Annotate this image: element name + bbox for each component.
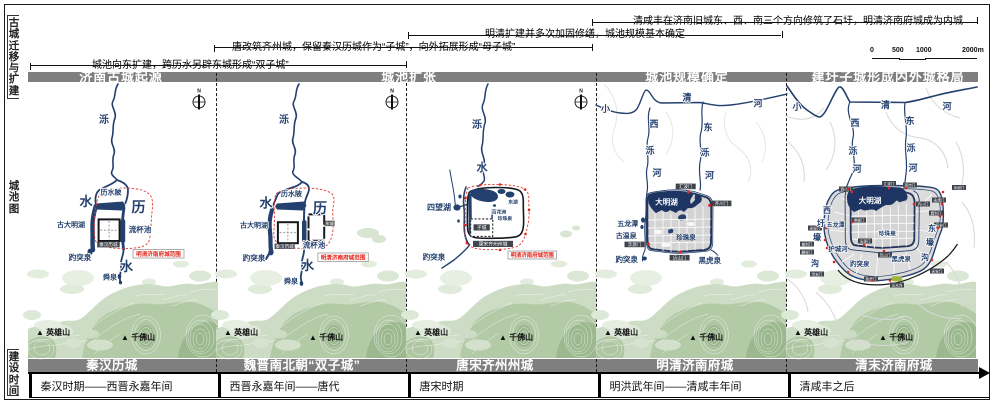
svg-text:河: 河 (852, 163, 861, 174)
svg-text:泺: 泺 (848, 145, 857, 156)
svg-text:趵突泉: 趵突泉 (615, 254, 638, 264)
svg-text:泺源门: 泺源门 (628, 241, 641, 248)
svg-text:河: 河 (753, 98, 762, 109)
svg-text:东: 东 (905, 115, 914, 126)
svg-text:唐宋齐州州城: 唐宋齐州州城 (479, 241, 508, 248)
svg-text:西: 西 (823, 206, 831, 215)
svg-text:五龙潭: 五龙潭 (617, 219, 638, 228)
svg-text:黑虎泉: 黑虎泉 (699, 255, 722, 265)
svg-text:汇波门: 汇波门 (679, 183, 692, 190)
svg-text:泺: 泺 (279, 113, 289, 126)
svg-text:秦汉历城: 秦汉历城 (99, 241, 118, 248)
svg-text:历山门: 历山门 (673, 254, 686, 261)
svg-text:沟: 沟 (921, 252, 929, 262)
svg-text:明清济南府城范围: 明清济南府城范围 (511, 251, 555, 259)
svg-text:泺: 泺 (472, 118, 482, 131)
svg-text:齐川门: 齐川门 (918, 201, 929, 206)
svg-text:古大明湖: 古大明湖 (57, 220, 85, 229)
svg-text:舜泉: 舜泉 (284, 276, 299, 285)
svg-text:河: 河 (652, 167, 661, 178)
svg-text:清: 清 (881, 99, 890, 110)
svg-text:永固门: 永固门 (954, 185, 965, 190)
svg-text:古大明湖: 古大明湖 (240, 221, 268, 230)
svg-text:百花洲: 百花洲 (492, 209, 507, 216)
svg-text:西: 西 (649, 119, 658, 129)
svg-text:历水陂: 历水陂 (101, 188, 123, 197)
svg-text:山水沟: 山水沟 (892, 282, 903, 287)
svg-text:黑虎泉: 黑虎泉 (892, 254, 912, 263)
svg-text:壕: 壕 (926, 237, 935, 247)
svg-text:泺: 泺 (906, 142, 915, 153)
svg-text:岱安门: 岱安门 (812, 271, 823, 276)
svg-text:流杯池: 流杯池 (303, 239, 326, 249)
svg-text:流杯池: 流杯池 (129, 224, 152, 234)
svg-text:明清济南府城范围: 明清济南府城范围 (136, 250, 181, 258)
svg-text:水: 水 (79, 194, 93, 209)
svg-text:清: 清 (682, 92, 691, 103)
svg-text:泺: 泺 (700, 147, 709, 158)
svg-text:珍珠泉: 珍珠泉 (676, 233, 696, 242)
svg-text:普利门: 普利门 (802, 241, 813, 246)
svg-text:河: 河 (908, 162, 917, 173)
svg-text:古温泉: 古温泉 (616, 231, 638, 240)
svg-text:历: 历 (313, 200, 327, 216)
svg-text:东城: 东城 (325, 220, 334, 227)
svg-text:齐川门: 齐川门 (715, 200, 728, 207)
svg-text:泺: 泺 (645, 145, 654, 156)
svg-text:圩: 圩 (817, 218, 825, 228)
svg-text:小: 小 (600, 103, 610, 114)
svg-text:泺: 泺 (99, 113, 109, 126)
svg-text:东: 东 (928, 223, 936, 233)
svg-text:沟: 沟 (811, 258, 819, 268)
svg-text:西: 西 (850, 118, 859, 128)
svg-text:水: 水 (477, 160, 489, 174)
svg-text:秦汉历城: 秦汉历城 (275, 243, 294, 250)
svg-text:辰安门: 辰安门 (936, 222, 947, 227)
svg-text:大明湖: 大明湖 (655, 197, 678, 207)
svg-text:历水陂: 历水陂 (281, 189, 303, 198)
svg-text:壕: 壕 (813, 232, 822, 242)
svg-text:珍珠泉: 珍珠泉 (879, 230, 897, 238)
svg-text:护城河: 护城河 (828, 244, 848, 253)
svg-text:泺源门: 泺源门 (860, 238, 871, 243)
svg-text:水: 水 (120, 259, 134, 274)
svg-text:舜泉: 舜泉 (103, 273, 118, 282)
svg-text:东湖: 东湖 (508, 199, 518, 206)
svg-text:子城: 子城 (477, 224, 487, 231)
svg-text:水: 水 (301, 258, 315, 273)
svg-text:历: 历 (132, 199, 146, 215)
svg-text:河: 河 (705, 170, 714, 181)
svg-text:四望湖: 四望湖 (427, 202, 451, 212)
svg-text:历山门: 历山门 (880, 252, 891, 257)
svg-text:西小门: 西小门 (841, 186, 852, 191)
svg-text:小: 小 (791, 101, 801, 112)
svg-text:明清济南府城范围: 明清济南府城范围 (321, 253, 366, 261)
svg-text:汇波门: 汇波门 (884, 181, 895, 186)
svg-text:趵突泉: 趵突泉 (243, 253, 266, 263)
svg-text:水: 水 (259, 196, 273, 211)
svg-text:坤顺门: 坤顺门 (854, 217, 865, 222)
svg-text:五龙潭: 五龙潭 (827, 221, 845, 229)
svg-text:麟祥门: 麟祥门 (802, 249, 813, 254)
svg-text:趵突泉: 趵突泉 (850, 259, 870, 268)
svg-text:菜市门: 菜市门 (905, 182, 916, 187)
svg-text:珍珠泉: 珍珠泉 (498, 215, 513, 222)
svg-text:永安门: 永安门 (932, 268, 943, 273)
svg-text:趵突泉: 趵突泉 (423, 252, 446, 262)
svg-text:大明湖: 大明湖 (859, 195, 882, 205)
svg-text:永靖门: 永靖门 (934, 197, 945, 202)
svg-text:河: 河 (942, 101, 951, 112)
svg-text:巽利门: 巽利门 (931, 210, 942, 215)
svg-text:趵突泉: 趵突泉 (69, 252, 92, 262)
svg-text:东: 东 (703, 122, 712, 133)
